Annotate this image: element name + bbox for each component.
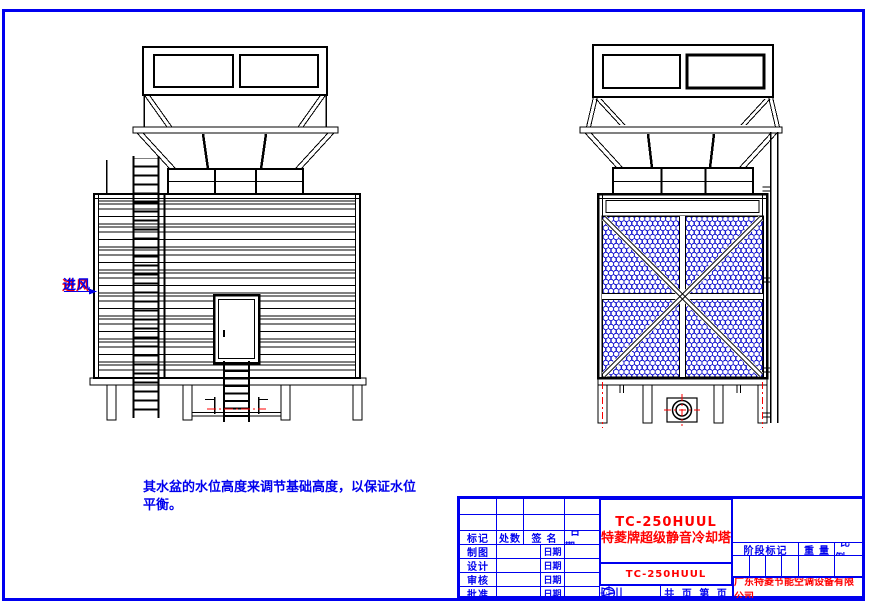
row-approve-signature bbox=[496, 586, 541, 600]
row-design-label: 设计 bbox=[459, 558, 497, 573]
row-check-label: 审核 bbox=[459, 572, 497, 587]
revision-header-signature: 签名 bbox=[523, 530, 565, 545]
scale-value-cell bbox=[834, 555, 865, 577]
revision-cell bbox=[459, 514, 497, 531]
stage-subcell bbox=[732, 555, 750, 577]
revision-header-count: 处数 bbox=[496, 530, 524, 545]
left-access-door bbox=[214, 295, 259, 363]
row-design-signature bbox=[496, 558, 541, 573]
water-level-note: 其水盆的水位高度来调节基础高度，以保证水位 平衡。 bbox=[143, 479, 416, 515]
stage-subcell bbox=[749, 555, 766, 577]
row-approve-date-label: 日期 bbox=[540, 586, 565, 600]
revision-cell bbox=[496, 514, 524, 531]
revision-header-date: 日期 bbox=[564, 530, 600, 545]
pages-cell: 共 页 第 页 bbox=[660, 584, 733, 600]
air-inlet-label: 进风 bbox=[63, 274, 91, 293]
stage-subcell bbox=[765, 555, 782, 577]
projection-target-icon bbox=[600, 585, 618, 600]
product-name-text: 特菱牌超级静音冷却塔 bbox=[601, 531, 731, 547]
stage-area-empty bbox=[732, 498, 865, 543]
revision-cell bbox=[496, 498, 524, 515]
scale-header: 比例 bbox=[834, 542, 865, 556]
row-drawn-date bbox=[564, 544, 600, 559]
stage-header: 阶段标记 bbox=[732, 542, 799, 556]
cad-drawing-page: 进风 其水盆的水位高度来调节基础高度，以保证水位 平衡。 标记 处数 签名 日期… bbox=[0, 0, 871, 611]
row-check-date bbox=[564, 572, 600, 587]
row-design-date-label: 日期 bbox=[540, 558, 565, 573]
left-fan-stack bbox=[137, 133, 334, 194]
title-block: 标记 处数 签名 日期 制图 日期 设计 日期 审核 日期 批准 日期 TC-2… bbox=[457, 496, 864, 598]
row-approve-date bbox=[564, 586, 600, 600]
weight-header: 重量 bbox=[798, 542, 835, 556]
row-drawn-signature bbox=[496, 544, 541, 559]
row-check-date-label: 日期 bbox=[540, 572, 565, 587]
company-name-cell: 广东特菱节能空调设备有限公司 bbox=[732, 576, 865, 600]
revision-header-mark: 标记 bbox=[459, 530, 497, 545]
projection-symbol-cell bbox=[599, 584, 661, 600]
revision-cell bbox=[523, 498, 565, 515]
revision-cell bbox=[459, 498, 497, 515]
row-check-signature bbox=[496, 572, 541, 587]
weight-value-cell bbox=[798, 555, 835, 577]
left-fan-hood bbox=[133, 47, 338, 133]
right-fan-hood bbox=[580, 45, 782, 133]
row-drawn-date-label: 日期 bbox=[540, 544, 565, 559]
row-drawn-label: 制图 bbox=[459, 544, 497, 559]
revision-cell bbox=[523, 514, 565, 531]
right-view bbox=[580, 45, 782, 428]
product-title-box: TC-250HUUL 特菱牌超级静音冷却塔 bbox=[599, 498, 733, 564]
revision-cell bbox=[564, 514, 600, 531]
right-fan-stack bbox=[585, 133, 777, 194]
left-view bbox=[90, 47, 366, 422]
row-design-date bbox=[564, 558, 600, 573]
note-line-1: 其水盆的水位高度来调节基础高度，以保证水位 bbox=[143, 479, 416, 497]
row-approve-label: 批准 bbox=[459, 586, 497, 600]
model-box: TC-250HUUL bbox=[599, 562, 733, 586]
product-model-text: TC-250HUUL bbox=[615, 515, 717, 531]
stage-subcell bbox=[781, 555, 799, 577]
right-inlet-mesh bbox=[602, 216, 763, 377]
right-side-rail bbox=[763, 132, 778, 423]
revision-cell bbox=[564, 498, 600, 515]
note-line-2: 平衡。 bbox=[143, 497, 416, 515]
